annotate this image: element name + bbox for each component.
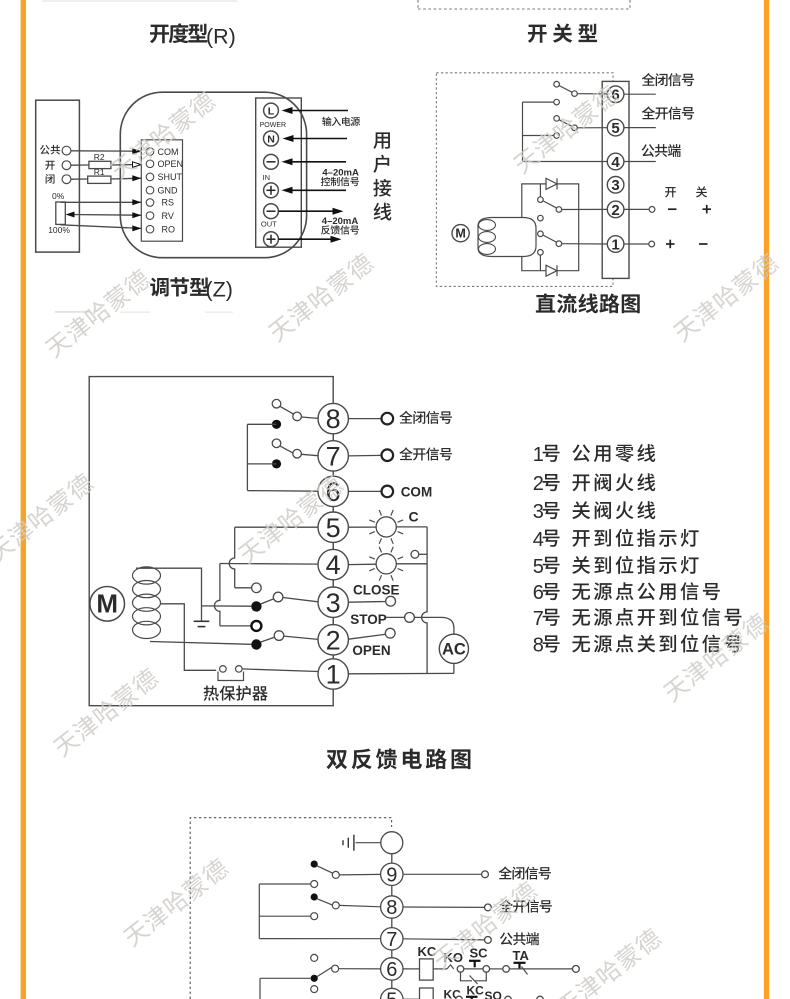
svg-text:7: 7 [533,608,544,630]
svg-text:M: M [455,227,465,241]
svg-text:3: 3 [533,501,544,523]
svg-text:4: 4 [533,529,544,551]
svg-text:6: 6 [533,582,544,604]
svg-text:SHUT: SHUT [158,172,183,182]
svg-text:8: 8 [326,404,341,434]
svg-text:4–20mA: 4–20mA [322,216,359,227]
svg-text:8: 8 [533,635,544,657]
svg-text:KC: KC [418,944,437,959]
svg-text:(R): (R) [206,25,236,49]
svg-text:RV: RV [162,211,174,221]
svg-text:STOP: STOP [350,612,387,627]
svg-text:7: 7 [326,442,341,472]
svg-text:OPEN: OPEN [352,643,390,658]
svg-text:0%: 0% [52,191,65,201]
svg-text:OUT: OUT [261,219,277,228]
svg-text:IN: IN [263,173,271,182]
svg-text:5: 5 [611,120,619,137]
svg-text:COM: COM [158,147,179,157]
svg-text:SO: SO [485,989,502,999]
svg-text:KC: KC [467,984,485,998]
svg-text:1: 1 [611,236,619,253]
svg-text:TA: TA [513,948,530,963]
svg-text:L: L [268,105,275,117]
svg-text:3: 3 [326,588,341,618]
svg-text:8: 8 [386,897,397,919]
svg-text:R1: R1 [94,167,105,177]
svg-text:100%: 100% [48,225,70,235]
svg-text:9: 9 [386,865,397,887]
svg-text:2: 2 [533,473,544,495]
svg-text:M: M [96,589,118,619]
svg-text:RO: RO [162,224,176,234]
svg-text:COM: COM [401,484,433,499]
svg-text:7: 7 [386,929,397,951]
svg-text:4–20mA: 4–20mA [322,167,359,178]
svg-text:3: 3 [611,177,619,194]
svg-text:4: 4 [611,154,620,171]
svg-text:POWER: POWER [260,122,286,129]
svg-text:5: 5 [386,990,397,999]
svg-text:N: N [267,134,275,146]
svg-text:OPEN: OPEN [158,159,184,169]
svg-text:(Z): (Z) [206,278,233,302]
svg-text:R2: R2 [94,152,105,162]
svg-text:1: 1 [533,444,544,466]
svg-text:5: 5 [533,556,544,578]
svg-text:5: 5 [326,513,341,543]
svg-text:GND: GND [158,185,179,195]
svg-text:4: 4 [326,550,341,580]
svg-text:C: C [409,509,419,525]
svg-text:RS: RS [162,198,175,208]
svg-text:CLOSE: CLOSE [353,582,400,597]
svg-text:2: 2 [326,625,341,655]
svg-text:AC: AC [442,641,466,659]
svg-text:1: 1 [326,660,341,690]
svg-text:6: 6 [386,959,397,981]
svg-text:2: 2 [611,202,619,219]
